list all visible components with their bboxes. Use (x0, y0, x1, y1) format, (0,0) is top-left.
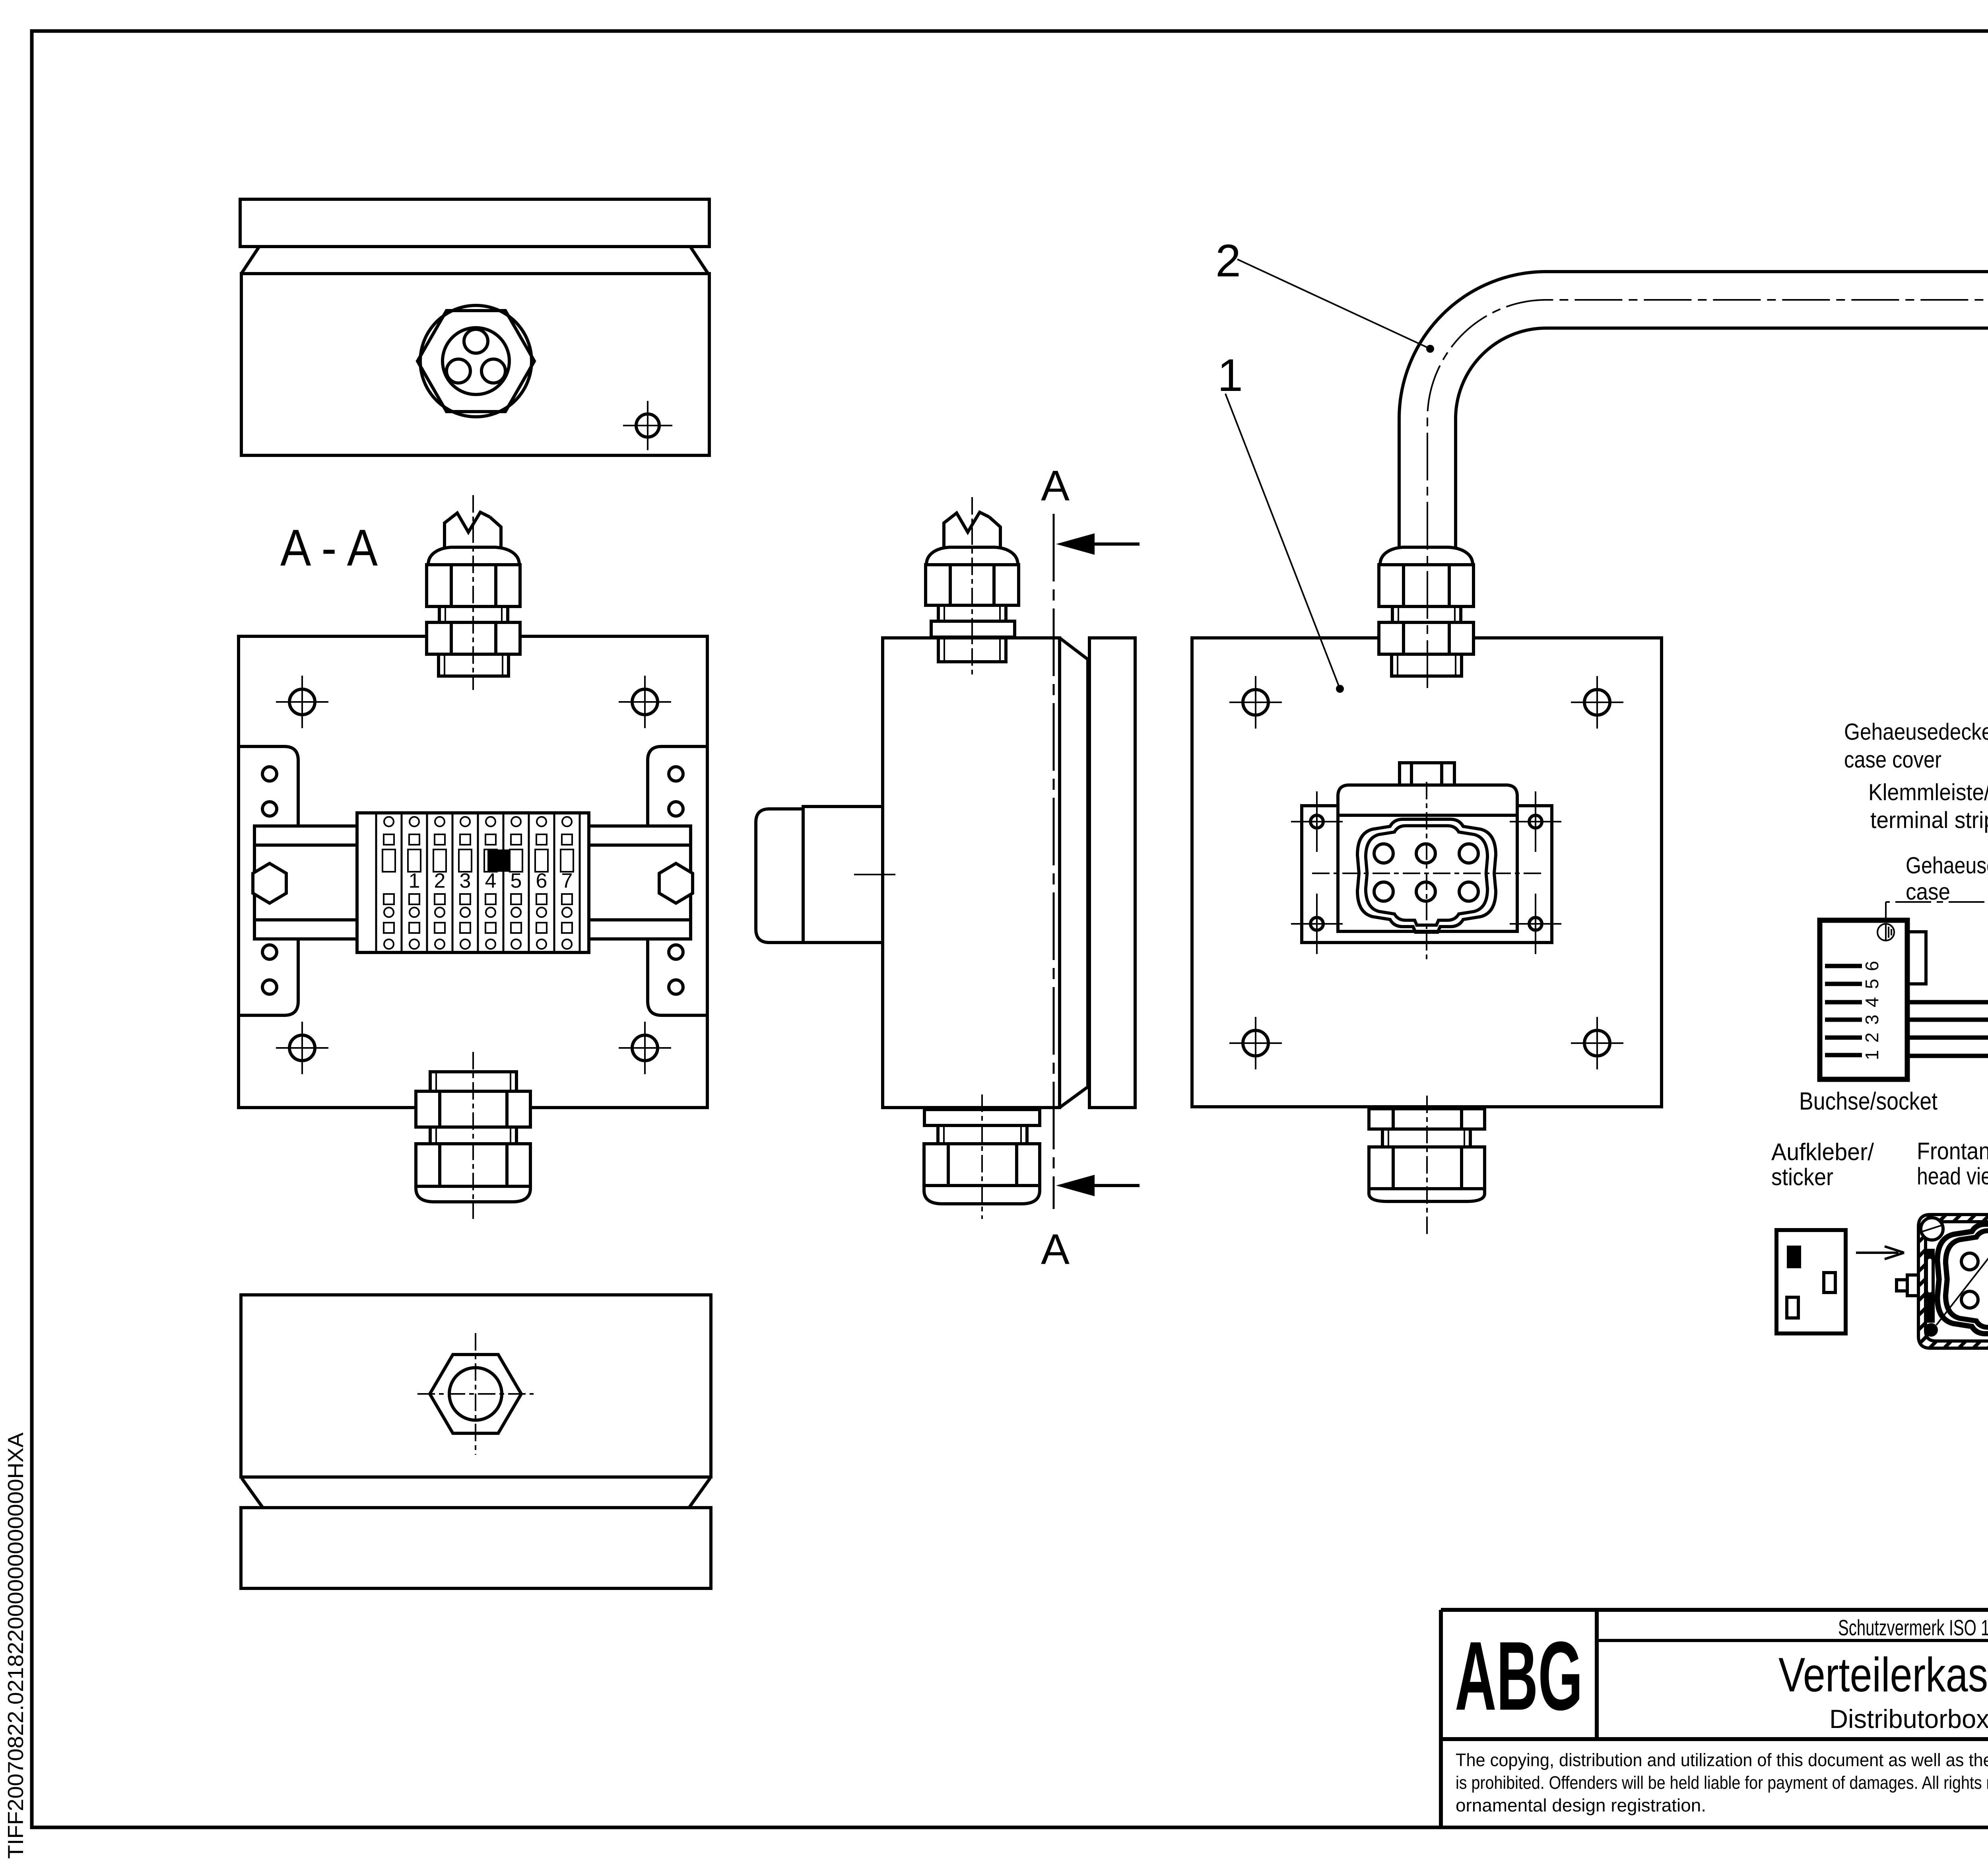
svg-text:5: 5 (511, 869, 522, 892)
svg-text:Klemmleiste/: Klemmleiste/ (1868, 779, 1988, 805)
svg-text:3: 3 (460, 869, 471, 892)
svg-text:Distributorbox Extension: Distributorbox Extension (1829, 1704, 1988, 1734)
svg-text:Verteilerkasten AFB LH: Verteilerkasten AFB LH (1778, 1648, 1988, 1702)
svg-text:The copying, distribution and: The copying, distribution and utilizatio… (1456, 1750, 1988, 1770)
svg-text:ABG: ABG (1455, 1621, 1583, 1731)
svg-text:Frontansicht: Frontansicht (1917, 1138, 1988, 1164)
svg-text:is prohibited. Offenders will: is prohibited. Offenders will be held li… (1456, 1773, 1988, 1793)
svg-text:2: 2 (434, 869, 446, 892)
svg-text:1: 1 (409, 869, 420, 892)
svg-text:Schutzvermerk ISO 16016 beacht: Schutzvermerk ISO 16016 beachten. (1838, 1615, 1988, 1640)
svg-text:6: 6 (1862, 961, 1882, 971)
svg-text:3: 3 (1862, 1015, 1882, 1025)
svg-text:case cover: case cover (1844, 747, 1941, 773)
svg-text:case: case (1906, 879, 1950, 905)
svg-text:terminal strip: terminal strip (1870, 807, 1988, 833)
svg-text:Gehaeusedeckel/: Gehaeusedeckel/ (1844, 719, 1988, 745)
svg-text:Gehaeuse/: Gehaeuse/ (1906, 853, 1988, 878)
svg-text:A: A (1041, 461, 1070, 509)
svg-text:A - A: A - A (280, 519, 378, 577)
svg-text:head view: head view (1917, 1163, 1988, 1189)
svg-text:2: 2 (1862, 1032, 1882, 1043)
svg-text:6: 6 (536, 869, 547, 892)
svg-text:4: 4 (485, 869, 497, 892)
svg-text:A: A (1041, 1225, 1070, 1273)
svg-text:2: 2 (1215, 235, 1241, 286)
svg-text:TIFF20070822.02182200000000000: TIFF20070822.021822000000000000HXA (3, 1432, 28, 1859)
svg-text:1: 1 (1217, 350, 1243, 401)
svg-text:sticker: sticker (1771, 1164, 1833, 1190)
svg-text:Buchse/socket: Buchse/socket (1799, 1088, 1938, 1115)
svg-text:5: 5 (1862, 979, 1882, 989)
svg-text:4: 4 (1862, 997, 1882, 1007)
svg-text:ornamental design registration: ornamental design registration. (1456, 1795, 1706, 1815)
svg-text:7: 7 (561, 869, 573, 892)
svg-text:Aufkleber/: Aufkleber/ (1771, 1139, 1874, 1165)
svg-text:1: 1 (1862, 1050, 1882, 1060)
